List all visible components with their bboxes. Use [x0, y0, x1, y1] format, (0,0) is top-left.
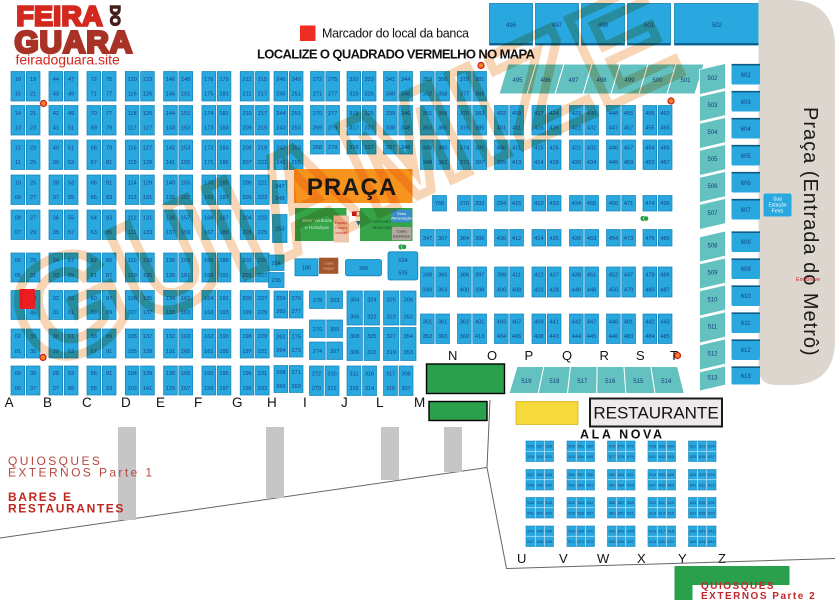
svg-text:183: 183	[219, 126, 228, 132]
svg-text:594: 594	[627, 529, 634, 534]
svg-text:P: P	[525, 348, 534, 363]
svg-text:604: 604	[741, 127, 752, 133]
svg-text:556: 556	[568, 472, 575, 477]
svg-text:44: 44	[53, 77, 59, 83]
svg-text:35: 35	[30, 371, 36, 377]
svg-text:262: 262	[276, 334, 285, 340]
svg-text:77: 77	[106, 111, 112, 117]
svg-text:231: 231	[258, 371, 267, 377]
svg-text:624: 624	[708, 444, 715, 449]
svg-text:547: 547	[527, 539, 534, 544]
svg-text:367: 367	[438, 236, 447, 242]
svg-text:567: 567	[587, 510, 594, 515]
svg-text:572: 572	[577, 539, 584, 544]
svg-text:605: 605	[741, 154, 752, 160]
svg-text:161: 161	[204, 349, 213, 355]
svg-text:W: W	[597, 551, 610, 566]
svg-text:11: 11	[15, 160, 21, 166]
svg-text:268: 268	[276, 370, 285, 376]
svg-text:508: 508	[707, 244, 718, 250]
svg-text:410: 410	[534, 288, 543, 294]
svg-text:J: J	[341, 395, 348, 410]
svg-text:EXTERNOS Parte 1: EXTERNOS Parte 1	[8, 466, 154, 480]
svg-text:65: 65	[91, 195, 97, 201]
svg-text:324: 324	[367, 298, 376, 304]
svg-text:127: 127	[143, 145, 152, 151]
svg-text:600: 600	[668, 444, 675, 449]
svg-text:66: 66	[91, 180, 97, 186]
svg-text:630: 630	[708, 472, 715, 477]
svg-text:502: 502	[707, 76, 718, 82]
svg-text:307: 307	[401, 386, 410, 392]
svg-text:543: 543	[546, 510, 553, 515]
svg-text:456: 456	[609, 201, 618, 207]
svg-text:531: 531	[546, 454, 553, 459]
svg-text:312: 312	[327, 386, 336, 392]
svg-text:428: 428	[549, 288, 558, 294]
svg-text:127: 127	[143, 126, 152, 132]
svg-text:511: 511	[708, 325, 718, 331]
svg-text:584: 584	[618, 482, 625, 487]
svg-text:275: 275	[328, 77, 337, 83]
svg-text:550: 550	[568, 444, 575, 449]
svg-text:569: 569	[577, 529, 584, 534]
svg-text:366: 366	[460, 273, 469, 279]
svg-text:454: 454	[645, 145, 654, 151]
svg-text:363: 363	[438, 288, 447, 294]
svg-text:537: 537	[546, 482, 553, 487]
svg-text:217: 217	[258, 111, 267, 117]
svg-text:21: 21	[30, 111, 36, 117]
svg-text:117: 117	[128, 126, 137, 132]
svg-text:580: 580	[609, 472, 616, 477]
svg-text:596: 596	[618, 539, 625, 544]
svg-text:401: 401	[475, 319, 484, 325]
svg-text:115: 115	[128, 160, 137, 166]
svg-text:505: 505	[707, 157, 718, 163]
svg-text:49: 49	[68, 92, 74, 98]
svg-text:562: 562	[568, 500, 575, 505]
svg-text:B: B	[43, 395, 52, 410]
svg-text:517: 517	[577, 379, 588, 385]
svg-text:636: 636	[708, 500, 715, 505]
svg-text:Feira: Feira	[772, 209, 784, 215]
svg-text:528: 528	[546, 444, 553, 449]
svg-text:591: 591	[627, 510, 634, 515]
svg-text:603: 603	[741, 100, 752, 106]
svg-text:442: 442	[645, 319, 654, 325]
svg-text:269: 269	[292, 384, 301, 390]
svg-text:X: X	[637, 551, 646, 566]
svg-text:454: 454	[609, 236, 618, 242]
svg-text:451: 451	[587, 273, 596, 279]
svg-text:174: 174	[204, 111, 213, 117]
svg-text:RESTAURANTE: RESTAURANTE	[593, 404, 718, 423]
svg-text:53: 53	[68, 180, 74, 186]
svg-text:436: 436	[572, 236, 581, 242]
svg-text:574: 574	[609, 444, 616, 449]
svg-text:181: 181	[219, 92, 228, 98]
svg-text:476: 476	[645, 236, 654, 242]
svg-text:474: 474	[645, 201, 654, 207]
svg-text:542: 542	[536, 510, 543, 515]
svg-text:271: 271	[292, 370, 301, 376]
svg-text:149: 149	[181, 77, 190, 83]
svg-text:325: 325	[367, 334, 376, 340]
svg-text:246: 246	[276, 77, 285, 83]
svg-text:447: 447	[587, 319, 596, 325]
svg-text:19: 19	[30, 77, 36, 83]
svg-text:638: 638	[699, 510, 706, 515]
svg-text:467: 467	[660, 160, 669, 166]
svg-text:433: 433	[549, 201, 558, 207]
svg-text:519: 519	[521, 379, 532, 385]
svg-text:471: 471	[624, 201, 633, 207]
svg-text:592: 592	[609, 529, 616, 534]
svg-text:H: H	[267, 395, 277, 410]
svg-text:260: 260	[276, 309, 285, 315]
svg-text:A: A	[5, 395, 14, 410]
svg-text:10: 10	[15, 180, 21, 186]
svg-text:506: 506	[707, 184, 718, 190]
svg-text:DO: DO	[108, 5, 124, 26]
svg-text:593: 593	[618, 529, 625, 534]
svg-text:603: 603	[668, 454, 675, 459]
svg-text:407: 407	[512, 319, 521, 325]
svg-text:525: 525	[398, 271, 407, 277]
svg-text:606: 606	[741, 181, 752, 187]
svg-text:93: 93	[106, 386, 112, 392]
svg-text:585: 585	[627, 482, 634, 487]
svg-text:Marcador do local da banca: Marcador do local da banca	[322, 27, 469, 41]
svg-text:527: 527	[536, 444, 543, 449]
svg-text:153: 153	[181, 126, 190, 132]
svg-text:116: 116	[128, 145, 137, 151]
svg-text:502: 502	[712, 23, 723, 29]
svg-text:408: 408	[512, 288, 521, 294]
svg-text:145: 145	[166, 92, 175, 98]
svg-text:587: 587	[618, 500, 625, 505]
svg-text:608: 608	[658, 482, 665, 487]
svg-text:E: E	[156, 395, 165, 410]
svg-text:196: 196	[242, 371, 251, 377]
svg-text:315: 315	[386, 386, 395, 392]
svg-text:125: 125	[143, 92, 152, 98]
svg-text:EXTERNOS Parte 2: EXTERNOS Parte 2	[701, 591, 816, 600]
svg-text:27: 27	[30, 195, 36, 201]
svg-text:G: G	[232, 395, 243, 410]
svg-text:197: 197	[219, 386, 228, 392]
svg-text:77: 77	[106, 92, 112, 98]
svg-text:311: 311	[350, 371, 359, 377]
svg-text:C: C	[82, 395, 92, 410]
svg-text:440: 440	[572, 288, 581, 294]
svg-text:619: 619	[649, 539, 656, 544]
svg-text:79: 79	[106, 126, 112, 132]
svg-text:49: 49	[68, 111, 74, 117]
svg-text:561: 561	[587, 482, 594, 487]
svg-text:141: 141	[166, 160, 175, 166]
svg-text:175: 175	[204, 92, 213, 98]
svg-text:514: 514	[661, 379, 672, 385]
svg-text:146: 146	[166, 77, 175, 83]
svg-text:F: F	[194, 395, 202, 410]
svg-text:397: 397	[475, 273, 484, 279]
svg-text:554: 554	[577, 454, 584, 459]
svg-text:130: 130	[166, 371, 175, 377]
svg-text:15: 15	[15, 92, 21, 98]
svg-text:217: 217	[258, 92, 267, 98]
svg-text:353: 353	[404, 350, 413, 356]
svg-text:568: 568	[568, 529, 575, 534]
svg-text:364: 364	[460, 236, 469, 242]
svg-text:613: 613	[649, 510, 656, 515]
svg-text:599: 599	[658, 444, 665, 449]
svg-text:503: 503	[707, 103, 718, 109]
svg-text:310: 310	[327, 371, 336, 377]
svg-text:513: 513	[707, 376, 718, 382]
svg-text:81: 81	[106, 180, 112, 186]
svg-text:360: 360	[460, 334, 469, 340]
svg-text:606: 606	[668, 472, 675, 477]
svg-text:362: 362	[460, 319, 469, 325]
svg-text:38: 38	[53, 180, 59, 186]
svg-text:167: 167	[181, 386, 190, 392]
svg-text:541: 541	[527, 510, 534, 515]
svg-text:315: 315	[349, 386, 358, 392]
svg-text:195: 195	[242, 386, 251, 392]
svg-text:162: 162	[204, 334, 213, 340]
svg-text:305: 305	[330, 327, 339, 333]
svg-text:131: 131	[166, 349, 175, 355]
svg-text:538: 538	[527, 500, 534, 505]
svg-text:609: 609	[668, 482, 675, 487]
svg-text:627: 627	[708, 454, 715, 459]
svg-text:442: 442	[572, 319, 581, 325]
svg-text:443: 443	[660, 319, 669, 325]
svg-text:633: 633	[708, 482, 715, 487]
svg-text:612: 612	[741, 348, 752, 354]
svg-text:548: 548	[536, 539, 543, 544]
svg-text:43: 43	[53, 92, 59, 98]
svg-text:566: 566	[577, 510, 584, 515]
svg-text:414: 414	[534, 236, 543, 242]
svg-text:160: 160	[204, 371, 213, 377]
svg-text:142: 142	[166, 145, 175, 151]
svg-text:41: 41	[53, 126, 59, 132]
svg-text:510: 510	[707, 298, 718, 304]
svg-text:626: 626	[699, 454, 706, 459]
svg-text:535: 535	[527, 482, 534, 487]
svg-text:631: 631	[690, 482, 697, 487]
svg-text:40: 40	[53, 145, 59, 151]
svg-text:306: 306	[350, 315, 359, 321]
svg-text:O: O	[487, 348, 497, 363]
svg-text:515: 515	[633, 379, 644, 385]
svg-text:533: 533	[536, 472, 543, 477]
svg-text:153: 153	[181, 145, 190, 151]
svg-text:104: 104	[128, 371, 137, 377]
svg-text:455: 455	[587, 201, 596, 207]
svg-text:441: 441	[549, 319, 558, 325]
svg-text:02: 02	[15, 334, 21, 340]
svg-text:453: 453	[645, 160, 654, 166]
svg-text:16: 16	[15, 77, 21, 83]
svg-text:08: 08	[15, 215, 21, 221]
svg-text:feiradoguara.site: feiradoguara.site	[16, 52, 121, 68]
svg-text:303: 303	[330, 298, 339, 304]
svg-text:354: 354	[404, 334, 413, 340]
svg-text:595: 595	[609, 539, 616, 544]
svg-text:445: 445	[587, 334, 596, 340]
svg-text:529: 529	[527, 454, 534, 459]
svg-text:212: 212	[242, 77, 251, 83]
svg-text:601: 601	[649, 454, 656, 459]
svg-text:448: 448	[587, 288, 596, 294]
svg-text:612: 612	[668, 500, 675, 505]
svg-text:271: 271	[313, 92, 322, 98]
svg-text:D: D	[121, 395, 131, 410]
svg-text:181: 181	[219, 111, 228, 117]
svg-text:452: 452	[609, 273, 618, 279]
svg-text:608: 608	[741, 240, 752, 246]
svg-text:251: 251	[292, 92, 301, 98]
svg-text:T: T	[670, 348, 678, 363]
svg-text:437: 437	[549, 273, 558, 279]
svg-text:I: I	[303, 395, 307, 410]
svg-text:632: 632	[699, 482, 706, 487]
svg-text:275: 275	[292, 334, 301, 340]
svg-text:349: 349	[423, 288, 432, 294]
svg-text:S: S	[636, 348, 645, 363]
svg-text:560: 560	[577, 482, 584, 487]
svg-text:555: 555	[587, 454, 594, 459]
svg-text:478: 478	[645, 273, 654, 279]
svg-text:79: 79	[106, 145, 112, 151]
svg-text:481: 481	[624, 319, 633, 325]
svg-text:277: 277	[292, 309, 301, 315]
svg-text:620: 620	[658, 539, 665, 544]
svg-text:483: 483	[624, 334, 633, 340]
svg-text:173: 173	[204, 126, 213, 132]
svg-text:279: 279	[292, 296, 301, 302]
svg-text:151: 151	[181, 111, 190, 117]
svg-text:245: 245	[276, 92, 285, 98]
svg-text:485: 485	[660, 334, 669, 340]
svg-text:604: 604	[649, 472, 656, 477]
svg-text:259: 259	[276, 296, 285, 302]
svg-text:489: 489	[660, 236, 669, 242]
svg-text:M: M	[414, 395, 425, 410]
svg-text:434: 434	[587, 160, 596, 166]
svg-text:602: 602	[658, 454, 665, 459]
svg-text:165: 165	[181, 371, 190, 377]
svg-text:322: 322	[367, 315, 376, 321]
svg-text:27: 27	[30, 215, 36, 221]
svg-text:264: 264	[276, 348, 285, 354]
svg-text:118: 118	[128, 111, 137, 117]
svg-text:273: 273	[292, 348, 301, 354]
svg-text:486: 486	[660, 273, 669, 279]
svg-text:363: 363	[438, 334, 447, 340]
svg-text:539: 539	[536, 500, 543, 505]
svg-text:412: 412	[534, 273, 543, 279]
svg-text:360: 360	[359, 266, 368, 272]
svg-text:129: 129	[166, 386, 175, 392]
svg-text:72: 72	[91, 77, 97, 83]
svg-text:68: 68	[91, 145, 97, 151]
svg-text:00: 00	[15, 386, 21, 392]
svg-text:323: 323	[387, 315, 396, 321]
svg-text:215: 215	[258, 77, 267, 83]
svg-text:607: 607	[649, 482, 656, 487]
svg-text:446: 446	[609, 334, 618, 340]
svg-text:575: 575	[618, 444, 625, 449]
svg-text:615: 615	[668, 510, 675, 515]
svg-text:563: 563	[577, 500, 584, 505]
svg-text:316: 316	[365, 371, 374, 377]
svg-text:400: 400	[460, 288, 469, 294]
svg-text:403: 403	[497, 319, 506, 325]
svg-text:306: 306	[350, 350, 359, 356]
svg-text:199: 199	[242, 310, 251, 316]
svg-text:70: 70	[91, 111, 97, 117]
svg-text:319: 319	[387, 350, 396, 356]
svg-text:143: 143	[166, 126, 175, 132]
svg-text:249: 249	[292, 77, 301, 83]
svg-text:496: 496	[660, 201, 669, 207]
svg-text:233: 233	[258, 386, 267, 392]
svg-text:Praça (Entrada do Metrô): Praça (Entrada do Metrô)	[799, 107, 821, 357]
svg-text:306: 306	[401, 371, 410, 377]
svg-text:465: 465	[660, 126, 669, 132]
svg-text:347: 347	[423, 236, 432, 242]
svg-text:195: 195	[219, 349, 228, 355]
svg-text:141: 141	[143, 386, 152, 392]
svg-text:609: 609	[741, 267, 752, 273]
svg-text:434: 434	[572, 201, 581, 207]
svg-text:12: 12	[15, 145, 21, 151]
svg-text:420: 420	[572, 160, 581, 166]
svg-text:244: 244	[276, 111, 285, 117]
svg-text:581: 581	[618, 472, 625, 477]
svg-text:487: 487	[660, 288, 669, 294]
svg-text:404: 404	[497, 334, 506, 340]
svg-text:114: 114	[128, 180, 137, 186]
svg-text:398: 398	[497, 273, 506, 279]
svg-text:613: 613	[741, 374, 752, 380]
svg-text:453: 453	[587, 236, 596, 242]
svg-text:611: 611	[659, 500, 666, 505]
svg-text:270: 270	[312, 386, 321, 392]
svg-text:229: 229	[258, 334, 267, 340]
svg-text:411: 411	[512, 273, 521, 279]
svg-text:353: 353	[423, 334, 432, 340]
svg-text:598: 598	[649, 444, 656, 449]
svg-text:532: 532	[527, 472, 534, 477]
svg-text:589: 589	[609, 510, 616, 515]
svg-text:53: 53	[68, 160, 74, 166]
svg-text:266: 266	[276, 384, 285, 390]
svg-text:55: 55	[91, 386, 97, 392]
svg-text:570: 570	[587, 529, 594, 534]
svg-text:278: 278	[313, 298, 322, 304]
svg-text:Z: Z	[718, 551, 726, 566]
svg-text:534: 534	[546, 472, 553, 477]
svg-text:211: 211	[243, 92, 252, 98]
svg-text:435: 435	[549, 236, 558, 242]
svg-text:408: 408	[534, 334, 543, 340]
